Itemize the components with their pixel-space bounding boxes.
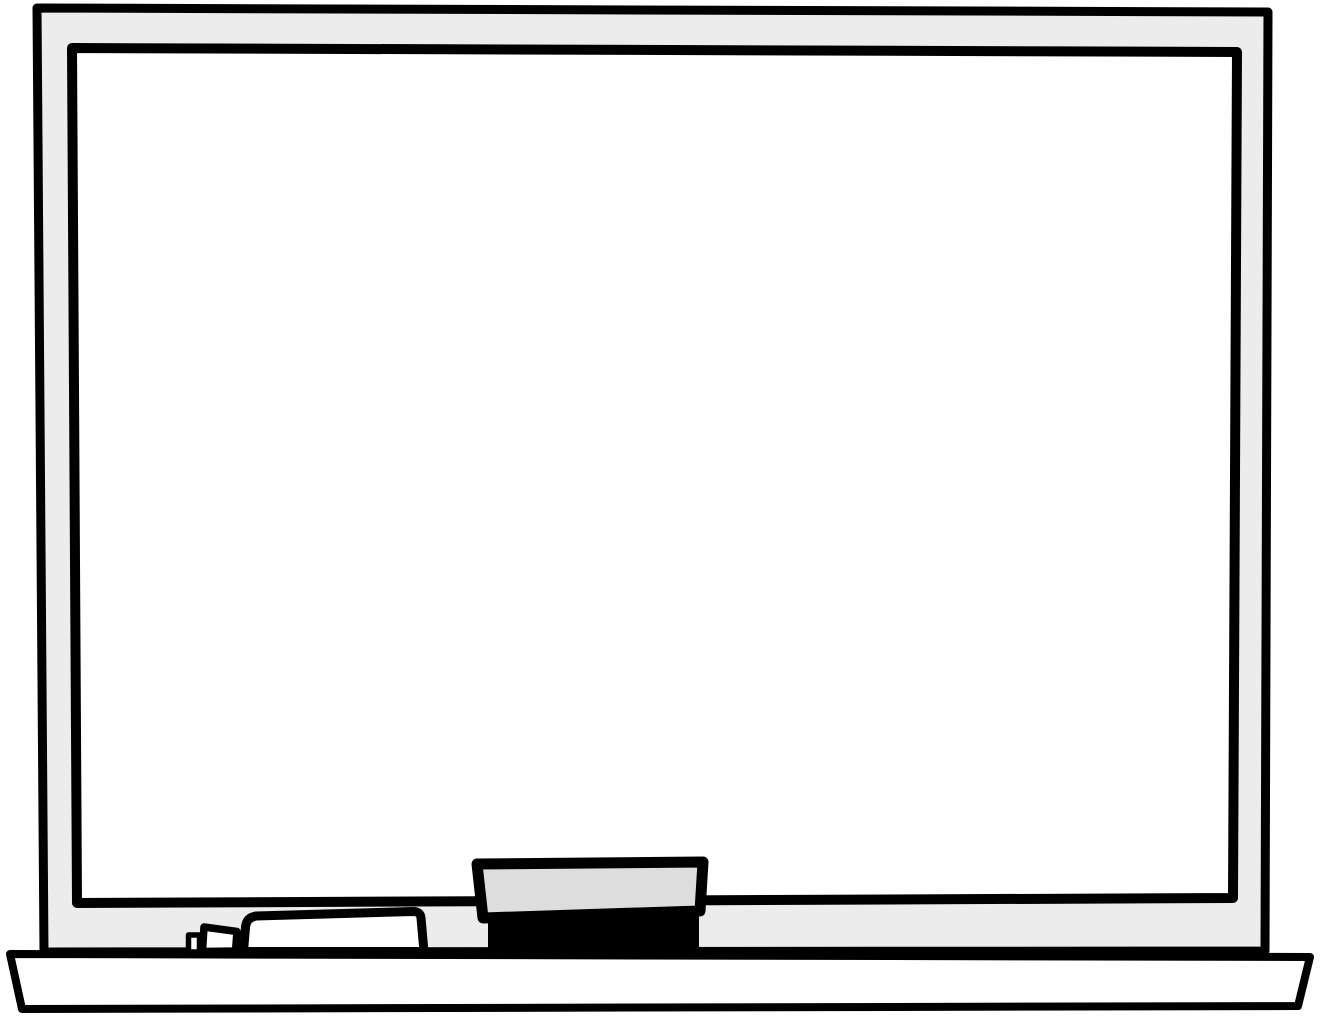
marker-cap <box>203 927 238 952</box>
eraser <box>477 862 703 954</box>
whiteboard-illustration <box>0 0 1320 1020</box>
whiteboard-canvas <box>0 0 1320 1020</box>
board-surface <box>72 48 1237 903</box>
marker-tray <box>10 954 1310 1009</box>
marker-body <box>244 912 425 952</box>
eraser-body <box>477 862 703 918</box>
marker-tip <box>189 935 200 952</box>
